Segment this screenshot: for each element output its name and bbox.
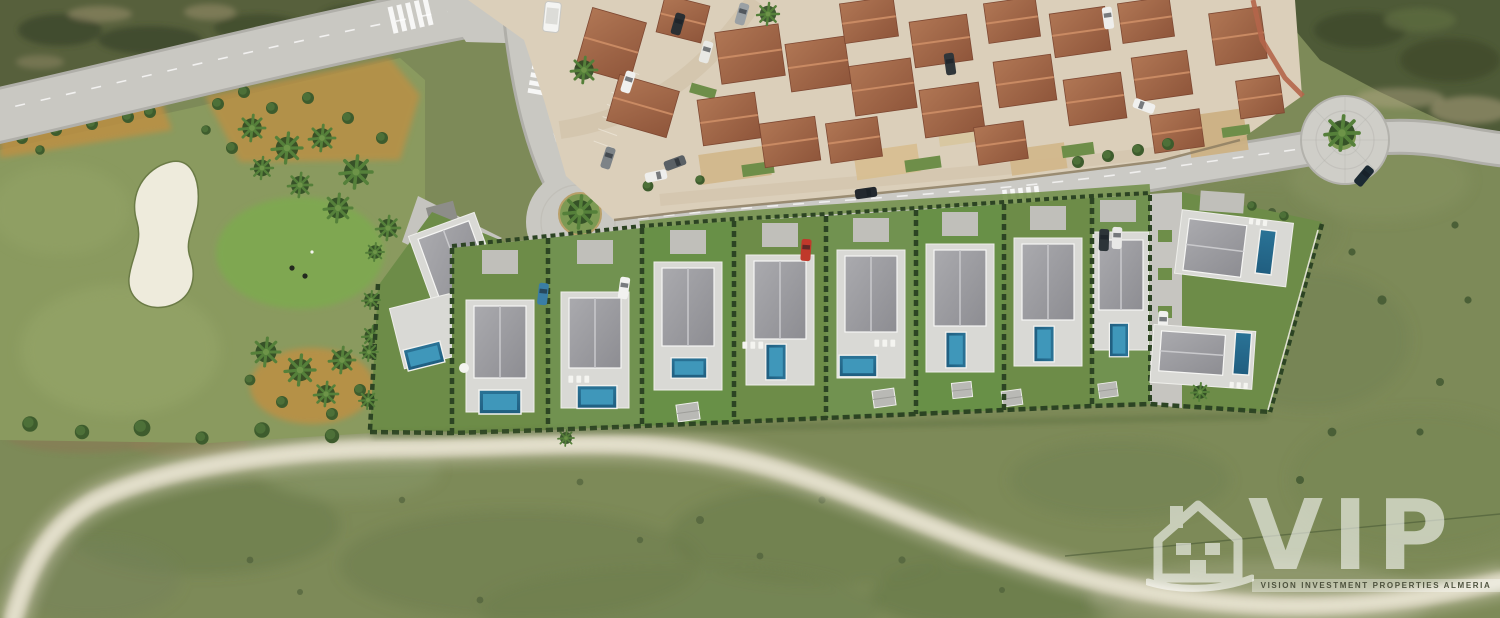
villa-plot xyxy=(916,204,1004,414)
villa-plot xyxy=(1001,198,1092,410)
car xyxy=(1099,229,1110,251)
swimming-pool xyxy=(1233,332,1252,375)
villa-plot xyxy=(642,221,734,426)
putting-green xyxy=(216,197,384,309)
swimming-pool xyxy=(1034,326,1054,362)
swimming-pool xyxy=(766,344,786,380)
swimming-pool xyxy=(479,390,521,414)
car xyxy=(1112,227,1123,249)
golfer xyxy=(302,273,307,278)
villa-plot xyxy=(734,216,826,422)
swimming-pool xyxy=(839,355,877,377)
villa-plot xyxy=(826,210,916,418)
parasol xyxy=(459,363,469,373)
garden-shed xyxy=(1098,382,1119,399)
golfer xyxy=(289,265,294,270)
turning-circle xyxy=(1301,96,1389,184)
villa-plot xyxy=(1092,195,1150,406)
swimming-pool xyxy=(1109,323,1128,357)
garden-shed xyxy=(951,381,972,398)
golf-flag xyxy=(310,250,313,253)
aerial-photo: VIP VISION INVESTMENT PROPERTIES ALMERIA xyxy=(0,0,1500,618)
villa-plot xyxy=(548,228,642,430)
bus xyxy=(542,1,561,33)
swimming-pool xyxy=(577,386,617,409)
villa-plot xyxy=(452,238,548,434)
garden-shed xyxy=(676,402,700,422)
swimming-pool xyxy=(946,332,966,368)
swimming-pool xyxy=(671,358,707,378)
garden-shed xyxy=(872,388,896,408)
car xyxy=(800,239,812,262)
aerial-scene xyxy=(0,0,1500,618)
